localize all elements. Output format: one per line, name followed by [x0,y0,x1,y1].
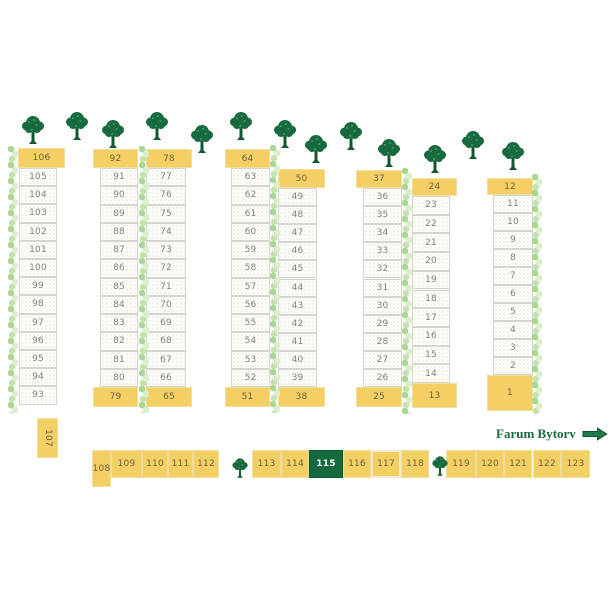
stall-12[interactable]: 12 [487,178,533,195]
stall-21[interactable]: 21 [412,233,450,252]
stall-121[interactable]: 121 [504,450,532,478]
stall-119[interactable]: 119 [446,450,476,478]
stall-63[interactable]: 63 [231,168,270,186]
stall-110[interactable]: 110 [142,450,168,478]
stall-24[interactable]: 24 [412,178,457,196]
tree-icon [272,119,298,149]
stall-23[interactable]: 23 [412,196,450,215]
stall-8[interactable]: 8 [493,249,533,267]
stall-38[interactable]: 38 [278,387,325,407]
stall-66[interactable]: 66 [146,369,186,387]
tree-icon [64,111,90,141]
stall-105[interactable]: 105 [19,168,57,186]
stall-35[interactable]: 35 [363,206,402,224]
stall-50[interactable]: 50 [278,169,325,188]
stall-90[interactable]: 90 [100,186,138,204]
stall-118[interactable]: 118 [401,450,429,478]
stall-80[interactable]: 80 [100,369,138,387]
tree-icon [189,124,215,154]
tree-icon [303,134,329,164]
stall-16[interactable]: 16 [412,327,450,346]
arrow-right-icon [582,427,608,441]
stall-76[interactable]: 76 [146,186,186,204]
stall-98[interactable]: 98 [19,295,57,313]
stall-9[interactable]: 9 [493,231,533,249]
stall-40[interactable]: 40 [278,351,317,369]
stall-46[interactable]: 46 [278,242,317,260]
stall-99[interactable]: 99 [19,277,57,295]
stall-31[interactable]: 31 [363,279,402,297]
stall-87[interactable]: 87 [100,241,138,259]
stall-104[interactable]: 104 [19,186,57,204]
stall-22[interactable]: 22 [412,215,450,234]
stall-72[interactable]: 72 [146,259,186,277]
stall-19[interactable]: 19 [412,271,450,290]
stall-11[interactable]: 11 [493,195,533,213]
stall-85[interactable]: 85 [100,278,138,296]
stall-47[interactable]: 47 [278,224,317,242]
stall-39[interactable]: 39 [278,369,317,387]
stall-15[interactable]: 15 [412,346,450,365]
stall-43[interactable]: 43 [278,297,317,315]
stall-58[interactable]: 58 [231,259,270,277]
stall-64[interactable]: 64 [225,149,270,168]
stall-97[interactable]: 97 [19,314,57,332]
stall-32[interactable]: 32 [363,260,402,278]
stall-59[interactable]: 59 [231,241,270,259]
stall-18[interactable]: 18 [412,290,450,309]
stall-45[interactable]: 45 [278,260,317,278]
stall-114[interactable]: 114 [281,450,309,478]
stall-95[interactable]: 95 [19,350,57,368]
tree-icon [20,115,46,145]
stall-70[interactable]: 70 [146,296,186,314]
stall-54[interactable]: 54 [231,332,270,350]
stall-36[interactable]: 36 [363,188,402,206]
stall-27[interactable]: 27 [363,351,402,369]
stall-2[interactable]: 2 [493,357,533,375]
stall-34[interactable]: 34 [363,224,402,242]
stall-123[interactable]: 123 [561,450,590,478]
tree-icon [144,111,170,141]
stall-116[interactable]: 116 [343,450,371,478]
stall-120[interactable]: 120 [476,450,504,478]
stall-29[interactable]: 29 [363,315,402,333]
stall-map: Farum Bytorv [0,0,610,610]
stall-56[interactable]: 56 [231,296,270,314]
stall-75[interactable]: 75 [146,205,186,223]
stall-67[interactable]: 67 [146,351,186,369]
tree-icon [228,111,254,141]
stall-28[interactable]: 28 [363,333,402,351]
hedge-icon [8,146,18,413]
stall-77[interactable]: 77 [146,168,186,186]
stall-74[interactable]: 74 [146,223,186,241]
stall-108[interactable]: 108 [92,450,111,487]
stall-14[interactable]: 14 [412,364,450,383]
stall-13[interactable]: 13 [412,383,457,408]
stall-89[interactable]: 89 [100,205,138,223]
tree-icon [338,121,364,151]
stall-93[interactable]: 93 [19,386,57,404]
tree-icon [460,130,486,160]
stall-96[interactable]: 96 [19,332,57,350]
stall-41[interactable]: 41 [278,333,317,351]
stall-79[interactable]: 79 [93,387,138,407]
stall-33[interactable]: 33 [363,242,402,260]
stall-3[interactable]: 3 [493,339,533,357]
stall-101[interactable]: 101 [19,241,57,259]
stall-106[interactable]: 106 [18,148,65,168]
stall-52[interactable]: 52 [231,369,270,387]
stall-78[interactable]: 78 [146,149,192,168]
stall-81[interactable]: 81 [100,351,138,369]
stall-88[interactable]: 88 [100,223,138,241]
stall-17[interactable]: 17 [412,308,450,327]
stall-62[interactable]: 62 [231,186,270,204]
stall-60[interactable]: 60 [231,223,270,241]
legend: Farum Bytorv [496,426,608,442]
stall-107[interactable]: 107 [37,418,58,458]
stall-57[interactable]: 57 [231,278,270,296]
tree-icon [376,138,402,168]
stall-49[interactable]: 49 [278,188,317,206]
stall-73[interactable]: 73 [146,241,186,259]
stall-20[interactable]: 20 [412,252,450,271]
tree-icon [500,141,526,171]
stall-7[interactable]: 7 [493,267,533,285]
stall-102[interactable]: 102 [19,223,57,241]
stall-10[interactable]: 10 [493,213,533,231]
stall-25[interactable]: 25 [356,387,402,407]
stall-100[interactable]: 100 [19,259,57,277]
stall-91[interactable]: 91 [100,168,138,186]
stall-122[interactable]: 122 [533,450,561,478]
stall-117[interactable]: 117 [371,450,401,478]
stall-30[interactable]: 30 [363,297,402,315]
stall-44[interactable]: 44 [278,279,317,297]
tree-icon [431,454,449,478]
stall-61[interactable]: 61 [231,205,270,223]
stall-55[interactable]: 55 [231,314,270,332]
stall-51[interactable]: 51 [225,387,270,407]
stall-83[interactable]: 83 [100,314,138,332]
stall-42[interactable]: 42 [278,315,317,333]
tree-icon [100,119,126,149]
stall-37[interactable]: 37 [356,170,402,188]
stall-65[interactable]: 65 [146,387,192,407]
stall-112[interactable]: 112 [193,450,219,478]
stall-94[interactable]: 94 [19,368,57,386]
stall-109[interactable]: 109 [111,450,142,478]
tree-icon [231,456,249,480]
stall-68[interactable]: 68 [146,332,186,350]
stall-26[interactable]: 26 [363,369,402,387]
stall-1[interactable]: 1 [487,375,533,411]
stall-69[interactable]: 69 [146,314,186,332]
stall-103[interactable]: 103 [19,204,57,222]
stall-92[interactable]: 92 [93,149,138,168]
stall-84[interactable]: 84 [100,296,138,314]
tree-icon [422,144,448,174]
stall-113[interactable]: 113 [252,450,281,478]
legend-label: Farum Bytorv [496,426,576,442]
hedge-icon [402,168,412,414]
stall-6[interactable]: 6 [493,285,533,303]
stall-71[interactable]: 71 [146,278,186,296]
stall-82[interactable]: 82 [100,332,138,350]
stall-53[interactable]: 53 [231,351,270,369]
stall-48[interactable]: 48 [278,206,317,224]
hedge-icon [532,174,542,414]
stall-86[interactable]: 86 [100,259,138,277]
stall-5[interactable]: 5 [493,303,533,321]
hedge-icon [139,146,149,413]
stall-115[interactable]: 115 [309,450,343,478]
stall-4[interactable]: 4 [493,321,533,339]
hedge-icon [270,145,280,413]
stall-111[interactable]: 111 [168,450,193,478]
